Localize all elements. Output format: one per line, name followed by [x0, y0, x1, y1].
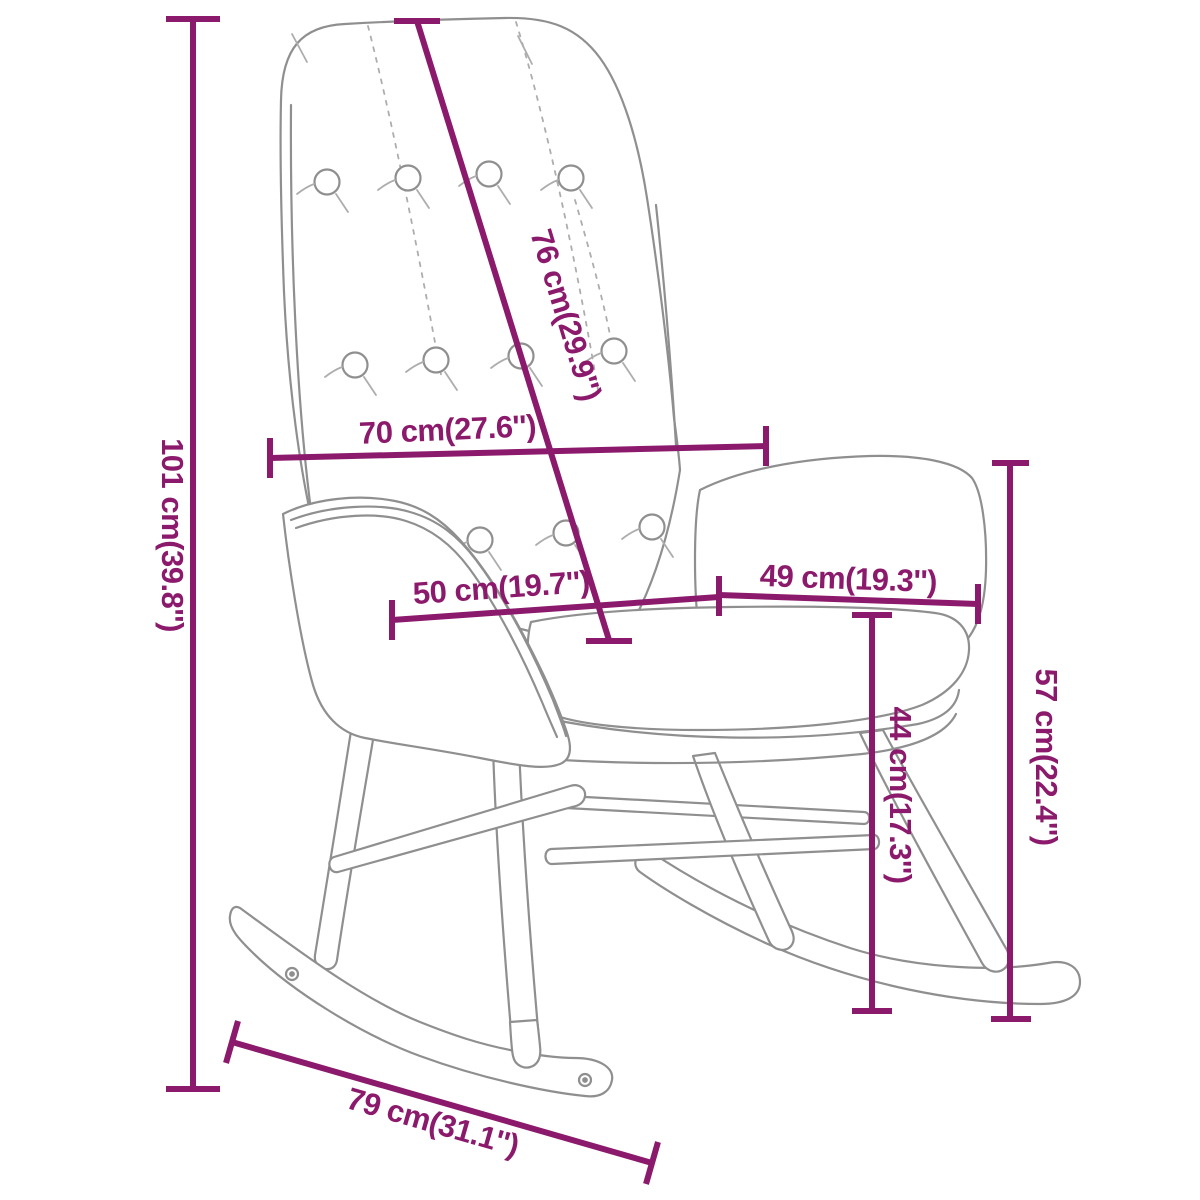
tuft-button [424, 348, 449, 373]
front-left-leg [493, 748, 539, 1058]
left-rocker [230, 907, 612, 1097]
tuft-button [640, 515, 665, 540]
dim-seat-height-label: 44 cm(17.3'') [883, 706, 918, 883]
diagram-svg: 101 cm(39.8'') 76 cm(29.9'') 70 cm(27.6'… [0, 0, 1200, 1200]
rear-right-leg [860, 730, 1009, 972]
tuft-button [343, 353, 368, 378]
dim-rocker-length-label: 79 cm(31.1'') [343, 1081, 523, 1163]
rocker-screw-center [290, 972, 294, 976]
tuft-button [477, 162, 502, 187]
rocker-screw-center [583, 1078, 587, 1082]
dim-armrest-span-label: 49 cm(19.3'') [759, 558, 937, 599]
cross-stretcher [545, 835, 879, 864]
dim-overall-height-label: 101 cm(39.8'') [155, 438, 190, 632]
tuft-button [396, 166, 421, 191]
tuft-button [315, 170, 340, 195]
right-rocker [635, 850, 1080, 1004]
tuft-button [468, 528, 493, 553]
tuft-button [559, 166, 584, 191]
dim-armrest-height-label: 57 cm(22.4'') [1029, 668, 1064, 845]
front-left-leg-foot [510, 1020, 540, 1068]
product-dimension-image: 101 cm(39.8'') 76 cm(29.9'') 70 cm(27.6'… [0, 0, 1200, 1200]
chair-drawing [230, 18, 1080, 1096]
tuft-button [602, 339, 627, 364]
